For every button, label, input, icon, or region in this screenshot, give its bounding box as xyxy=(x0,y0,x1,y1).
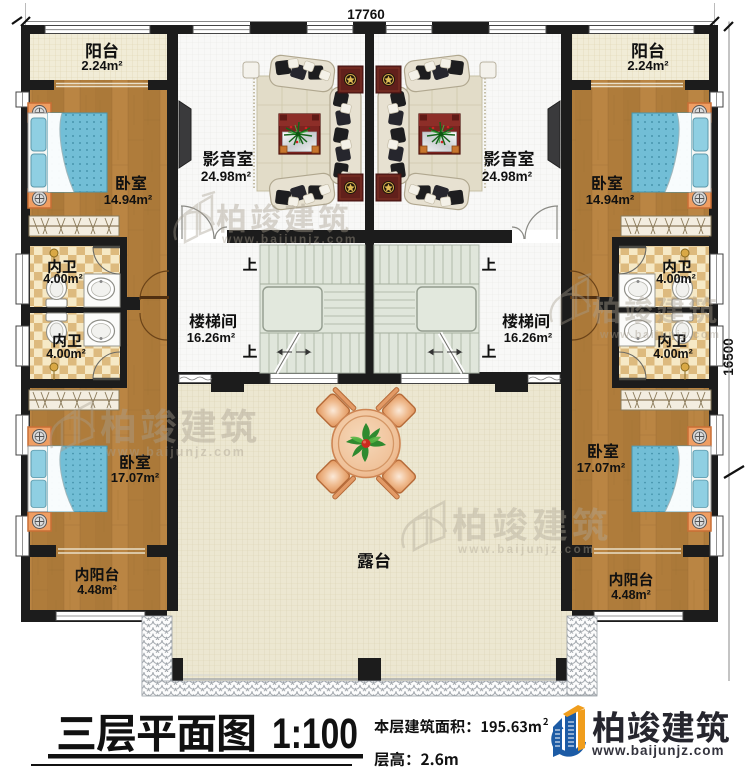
svg-text:4.48m²: 4.48m² xyxy=(611,588,651,602)
svg-text:www.baijunjz.com: www.baijunjz.com xyxy=(591,743,725,758)
svg-text:2.24m²: 2.24m² xyxy=(81,58,123,73)
svg-text:4.48m²: 4.48m² xyxy=(77,583,117,597)
svg-text:24.98m²: 24.98m² xyxy=(482,169,533,184)
svg-text:2.24m²: 2.24m² xyxy=(627,58,669,73)
svg-text:1:100: 1:100 xyxy=(272,710,358,758)
svg-text:24.98m²: 24.98m² xyxy=(201,169,252,184)
svg-text:4.00m²: 4.00m² xyxy=(46,347,86,361)
svg-text:14.94m²: 14.94m² xyxy=(586,192,635,207)
svg-text:14.94m²: 14.94m² xyxy=(104,192,153,207)
svg-text:4.00m²: 4.00m² xyxy=(43,272,83,286)
svg-text:www.baijunjz.com: www.baijunjz.com xyxy=(221,232,358,246)
svg-text:16.26m²: 16.26m² xyxy=(504,330,553,345)
svg-text:www.baijunjz.com: www.baijunjz.com xyxy=(105,445,246,459)
svg-text:17760: 17760 xyxy=(347,7,385,22)
svg-text:www.baijunjz.com: www.baijunjz.com xyxy=(599,329,721,341)
svg-text:4.00m²: 4.00m² xyxy=(656,272,696,286)
svg-text:www.baijunjz.com: www.baijunjz.com xyxy=(457,544,596,556)
svg-text:16.26m²: 16.26m² xyxy=(187,330,236,345)
svg-text:4.00m²: 4.00m² xyxy=(653,347,693,361)
svg-text:17.07m²: 17.07m² xyxy=(577,460,626,475)
svg-text:17.07m²: 17.07m² xyxy=(111,470,160,485)
